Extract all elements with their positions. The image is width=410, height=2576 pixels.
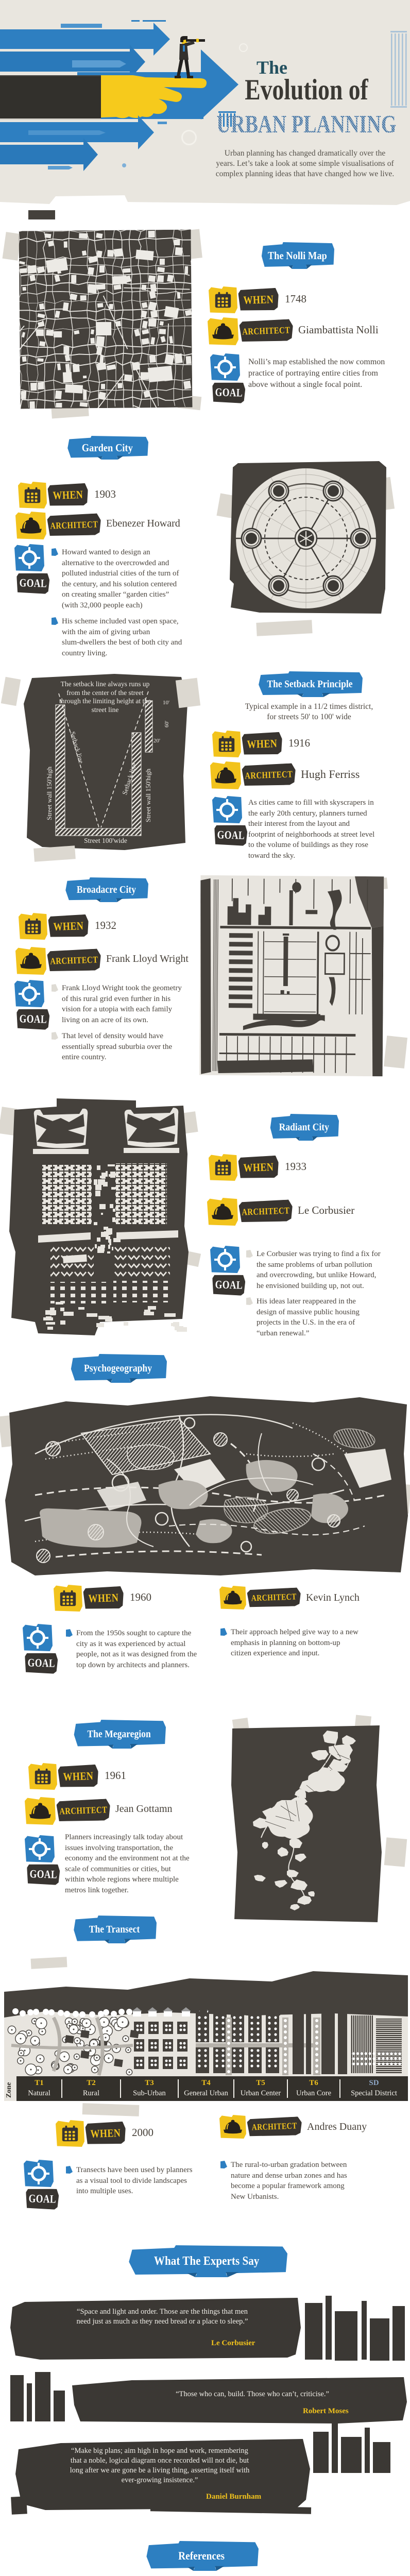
svg-text:Sub-Urban: Sub-Urban (133, 2089, 166, 2097)
svg-text:General Urban: General Urban (184, 2089, 228, 2097)
svg-text:T6: T6 (309, 2079, 318, 2087)
svg-text:T3: T3 (145, 2079, 154, 2087)
svg-text:Special District: Special District (351, 2089, 397, 2097)
svg-text:Natural: Natural (28, 2089, 50, 2097)
svg-text:T5: T5 (256, 2079, 265, 2087)
svg-text:Urban Center: Urban Center (241, 2089, 281, 2097)
svg-text:Rural: Rural (83, 2089, 99, 2097)
svg-text:SD: SD (369, 2079, 379, 2087)
svg-text:T1: T1 (35, 2079, 44, 2087)
svg-text:Urban Core: Urban Core (296, 2089, 331, 2097)
svg-text:T4: T4 (201, 2079, 211, 2087)
svg-text:T2: T2 (87, 2079, 96, 2087)
